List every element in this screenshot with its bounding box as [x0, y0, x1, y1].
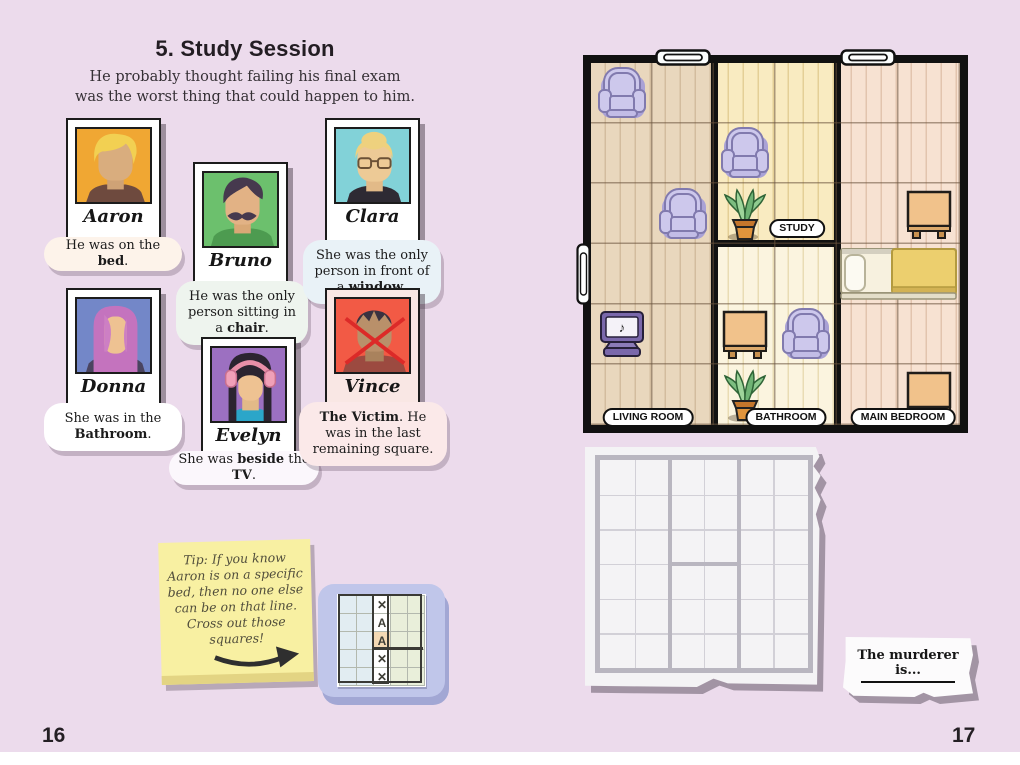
example-cell — [339, 595, 357, 614]
clue-evelyn: She was beside the TV. — [169, 451, 319, 485]
table-icon — [905, 189, 953, 239]
plant-item — [721, 187, 769, 246]
example-cell — [356, 631, 374, 650]
table-item — [721, 309, 769, 364]
example-cell: ✕ — [373, 667, 391, 686]
table-icon — [721, 309, 769, 359]
puzzle-title: 5. Study Session — [75, 36, 415, 62]
answer-paper: The murderer is... — [843, 637, 973, 697]
answer-blank-line[interactable] — [861, 681, 955, 683]
arrow-right-icon — [211, 643, 300, 671]
example-cell — [356, 595, 374, 614]
clue-donna: She was in the Bathroom. — [44, 403, 182, 451]
example-cell: A — [373, 613, 391, 632]
portrait-evelyn — [210, 346, 287, 423]
example-cell — [356, 667, 374, 686]
chair-item — [597, 66, 647, 125]
suspect-name: Clara — [327, 206, 418, 227]
suspect-name: Donna — [68, 376, 159, 397]
suspect-name: Evelyn — [203, 425, 294, 446]
suspect-name: Bruno — [195, 250, 286, 271]
portrait-aaron — [75, 127, 152, 204]
chair-item — [658, 187, 708, 246]
example-cell: A — [373, 631, 391, 650]
book-spread: 5. Study Session He probably thought fai… — [0, 0, 1020, 752]
scratch-paper — [585, 447, 823, 687]
suspect-card-evelyn: Evelyn — [201, 337, 296, 461]
example-cell — [339, 613, 357, 632]
tv-item: ♪ — [596, 310, 648, 363]
door-icon — [576, 243, 591, 305]
scratch-grid[interactable] — [595, 455, 813, 673]
example-cell — [407, 667, 425, 686]
portrait-vince — [334, 297, 411, 374]
suspect-name: Vince — [327, 376, 418, 397]
armchair-icon — [597, 66, 647, 120]
answer-box: The murderer is... — [843, 637, 973, 697]
example-cell — [356, 649, 374, 668]
door-item — [576, 243, 591, 310]
tip-text: Tip: If you knowAaron is on a specificbe… — [162, 549, 308, 649]
answer-label: The murderer is... — [843, 648, 973, 678]
armchair-icon — [720, 126, 770, 180]
floorplan: ♪ LIVING ROOM STUDY BATHROOM MAIN BEDROO… — [583, 55, 968, 433]
tip-sticky-note: Tip: If you knowAaron is on a specificbe… — [158, 539, 314, 685]
example-cell — [407, 613, 425, 632]
clue-bruno: He was the only person sitting in a chai… — [176, 281, 308, 345]
table-item — [905, 189, 953, 244]
subtitle-line-2: was the worst thing that could happen to… — [55, 88, 435, 108]
portrait-bruno — [202, 171, 279, 248]
tip-example-card: ✕AA✕✕ — [318, 584, 445, 697]
suspect-card-vince: Vince — [325, 288, 420, 412]
svg-text:♪: ♪ — [619, 320, 626, 335]
example-cell — [407, 631, 425, 650]
page-number-right: 17 — [952, 724, 975, 748]
suspect-card-aaron: Aaron — [66, 118, 161, 242]
suspect-card-clara: Clara — [325, 118, 420, 242]
suspect-card-bruno: Bruno — [193, 162, 288, 286]
clue-vince: The Victim. He was in the last remaining… — [299, 402, 447, 466]
plant-icon — [721, 187, 769, 241]
armchair-icon — [781, 307, 831, 361]
example-cell — [339, 631, 357, 650]
example-cell: ✕ — [373, 595, 391, 614]
chair-item — [781, 307, 831, 366]
sticky-note-fold — [162, 672, 314, 685]
example-cell — [407, 649, 425, 668]
bed-item — [840, 247, 957, 307]
room-label-living-room: LIVING ROOM — [603, 408, 694, 427]
example-cell — [339, 649, 357, 668]
example-cell — [390, 595, 408, 614]
example-cell — [390, 667, 408, 686]
room-label-study: STUDY — [769, 219, 825, 238]
puzzle-subtitle: He probably thought failing his final ex… — [55, 68, 435, 107]
portrait-donna — [75, 297, 152, 374]
chair-item — [720, 126, 770, 185]
suspect-card-donna: Donna — [66, 288, 161, 412]
floorplan-rooms: ♪ LIVING ROOM STUDY BATHROOM MAIN BEDROO… — [591, 63, 960, 425]
clue-aaron: He was on the bed. — [44, 237, 182, 271]
example-cell — [390, 631, 408, 650]
scratch-pad — [585, 447, 823, 687]
subtitle-line-1: He probably thought failing his final ex… — [55, 68, 435, 88]
example-cell — [390, 649, 408, 668]
floorplan-items: ♪ — [591, 63, 960, 425]
portrait-clara — [334, 127, 411, 204]
bed-icon — [840, 247, 957, 302]
armchair-icon — [658, 187, 708, 241]
tv-icon: ♪ — [596, 310, 648, 358]
room-label-bathroom: BATHROOM — [745, 408, 826, 427]
room-label-main-bedroom: MAIN BEDROOM — [851, 408, 956, 427]
page-number-left: 16 — [42, 724, 65, 748]
example-cell — [356, 613, 374, 632]
suspect-name: Aaron — [68, 206, 159, 227]
example-cell — [390, 613, 408, 632]
tip-example-paper: ✕AA✕✕ — [337, 594, 426, 687]
example-cell — [407, 595, 425, 614]
example-cell — [339, 667, 357, 686]
example-cell: ✕ — [373, 649, 391, 668]
